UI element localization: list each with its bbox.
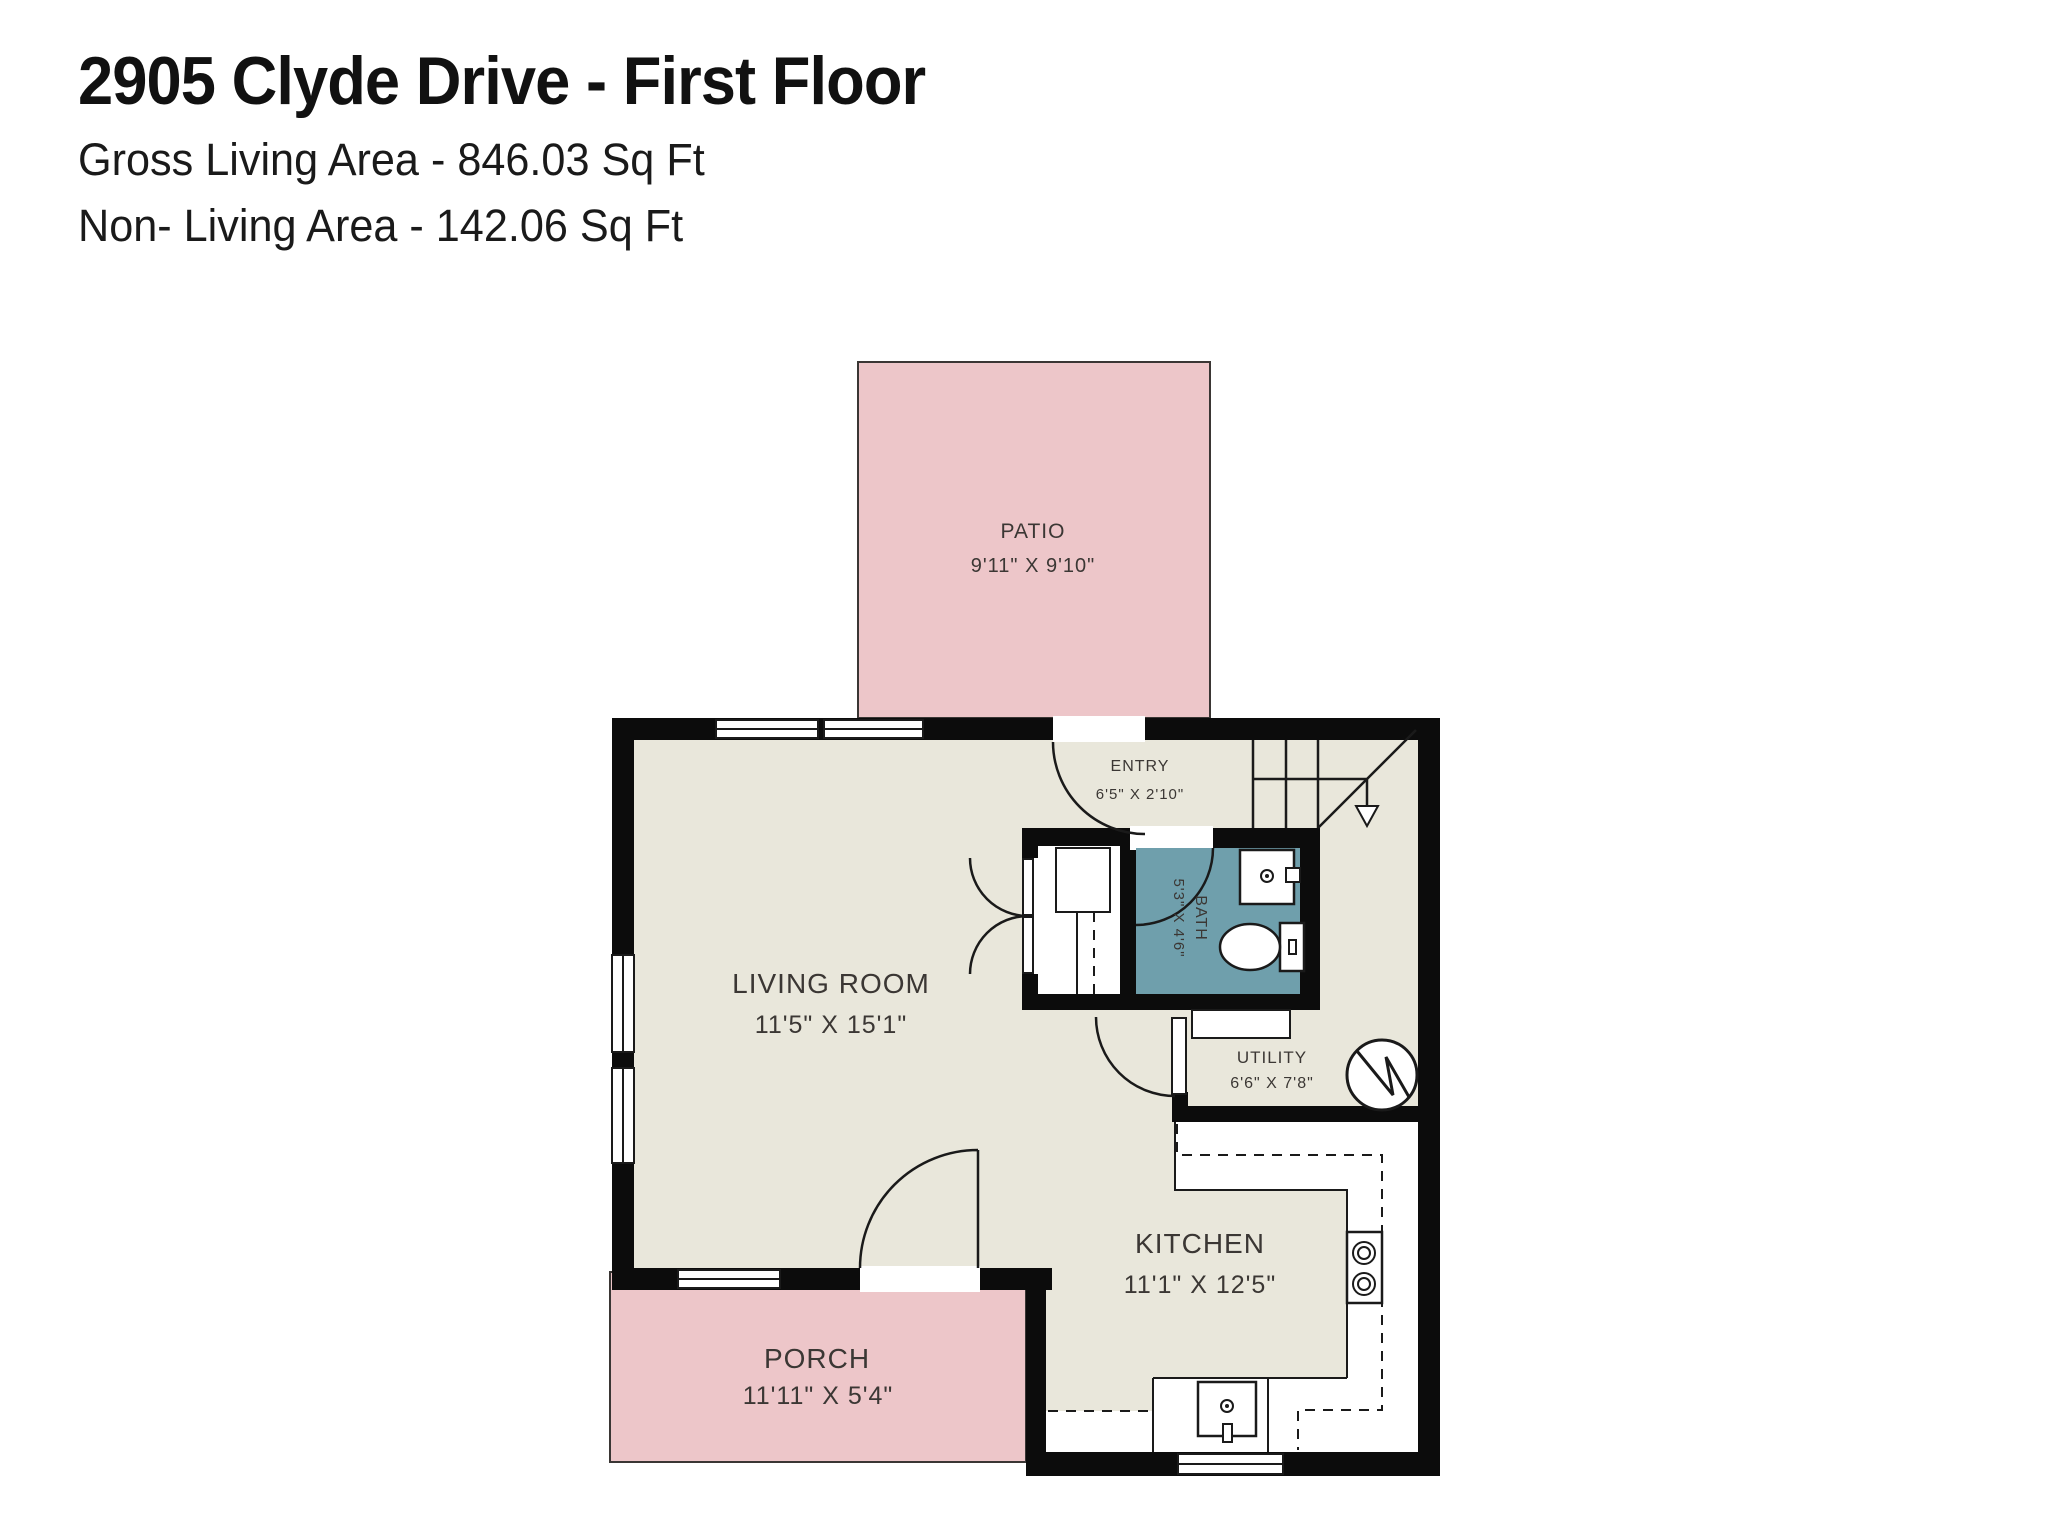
utility-label: UTILITY [1237, 1048, 1307, 1067]
porch-dims: 11'11" X 5'4" [743, 1382, 894, 1410]
water-heater-icon [1347, 1040, 1417, 1110]
window-top-1 [716, 720, 818, 738]
kitchen-sink-icon [1198, 1382, 1256, 1442]
living-room-dims: 11'5" X 15'1" [755, 1011, 907, 1039]
bath-door-opening [1130, 826, 1213, 850]
kitchen-dims: 11'1" X 12'5" [1124, 1271, 1276, 1299]
bath-dims: 5'3" X 4'6" [1170, 878, 1187, 957]
closet-door-leaf-lower [1023, 917, 1033, 973]
entry-dims: 6'5" X 2'10" [1096, 786, 1184, 803]
entry-label: ENTRY [1111, 758, 1170, 775]
floor-plan: PATIO 9'11" X 9'10" ENTRY 6'5" X 2'10" B… [0, 0, 2048, 1536]
floor-plan-page: 2905 Clyde Drive - First Floor Gross Liv… [0, 0, 2048, 1536]
closet-door-leaf-upper [1023, 859, 1033, 915]
utility-dims: 6'6" X 7'8" [1230, 1075, 1314, 1092]
stove-icon [1347, 1232, 1382, 1303]
porch-label: PORCH [764, 1343, 870, 1374]
utility-door-leaf [1172, 1018, 1186, 1094]
patio-label: PATIO [1001, 520, 1066, 543]
patio-dims: 9'11" X 9'10" [971, 555, 1096, 577]
entry-door-opening [1053, 716, 1145, 742]
window-left-1 [612, 955, 634, 1052]
bath-label: BATH [1192, 895, 1209, 940]
kitchen-label: KITCHEN [1135, 1228, 1265, 1259]
window-left-2 [612, 1068, 634, 1163]
window-top-2 [824, 720, 923, 738]
window-bottom-living [678, 1270, 780, 1288]
window-bottom-kitchen [1178, 1454, 1283, 1474]
bath-sink-icon [1240, 850, 1300, 904]
porch-door-opening [860, 1266, 980, 1292]
toilet-icon [1220, 923, 1304, 971]
utility-counter [1192, 1010, 1290, 1038]
living-room-label: LIVING ROOM [732, 968, 930, 999]
